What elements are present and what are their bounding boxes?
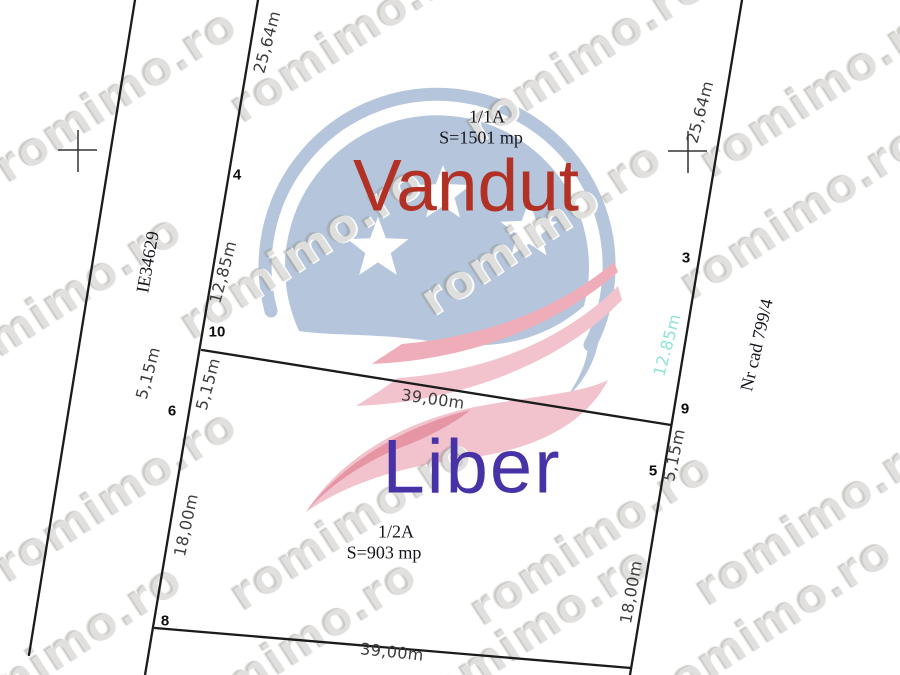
status-sold-label: Vandut [353, 145, 579, 228]
survey-point-number: 6 [168, 403, 176, 420]
dimension-label: 5,15m [659, 427, 689, 483]
dimension-label: 5,15m [132, 345, 164, 401]
survey-point-number: 8 [161, 613, 169, 630]
cadastral-sketch: romimo.roromimo.roromimo.roromimo.roromi… [0, 0, 900, 675]
parcel-bottom-area: S=903 mp [347, 543, 422, 564]
survey-point-number: 5 [649, 463, 657, 480]
dimension-label: 5,15m [192, 356, 224, 412]
right-parcel-ref: Nr cad 799/4 [736, 297, 778, 393]
dimension-label: 39,00m [359, 639, 424, 665]
status-available-label: Liber [383, 424, 562, 511]
dimension-label: 18,00m [170, 492, 202, 558]
dimension-label: 12.85m [650, 312, 685, 379]
dimension-label: 25,64m [683, 79, 718, 146]
survey-point-number: 9 [681, 401, 689, 418]
survey-point-number: 10 [209, 324, 226, 341]
parcel-bottom-lot-number: 1/2A [378, 522, 414, 543]
label-layer: 1/1A S=1501 mp Vandut 1/2A S=903 mp Libe… [0, 0, 900, 675]
dimension-label: 12,85m [206, 239, 241, 306]
left-parcel-ref: IE34629 [132, 230, 163, 295]
dimension-label: 25,64m [250, 9, 285, 76]
survey-point-number: 4 [233, 167, 241, 184]
survey-point-number: 3 [682, 250, 690, 267]
parcel-top-lot-number: 1/1A [469, 107, 505, 128]
dimension-label: 18,00m [616, 559, 646, 625]
dimension-label: 39,00m [400, 385, 466, 413]
